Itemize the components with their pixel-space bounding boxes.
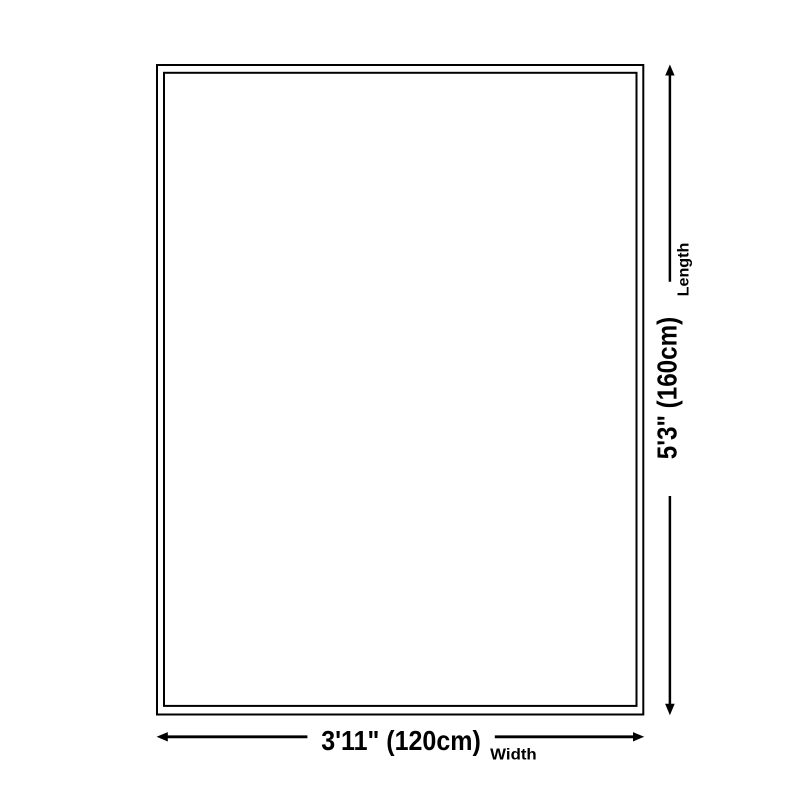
svg-text:Length: Length [676, 243, 693, 297]
svg-text:3'11" (120cm): 3'11" (120cm) [321, 725, 481, 756]
svg-text:Width: Width [490, 746, 537, 763]
svg-text:5'3" (160cm): 5'3" (160cm) [652, 317, 683, 460]
